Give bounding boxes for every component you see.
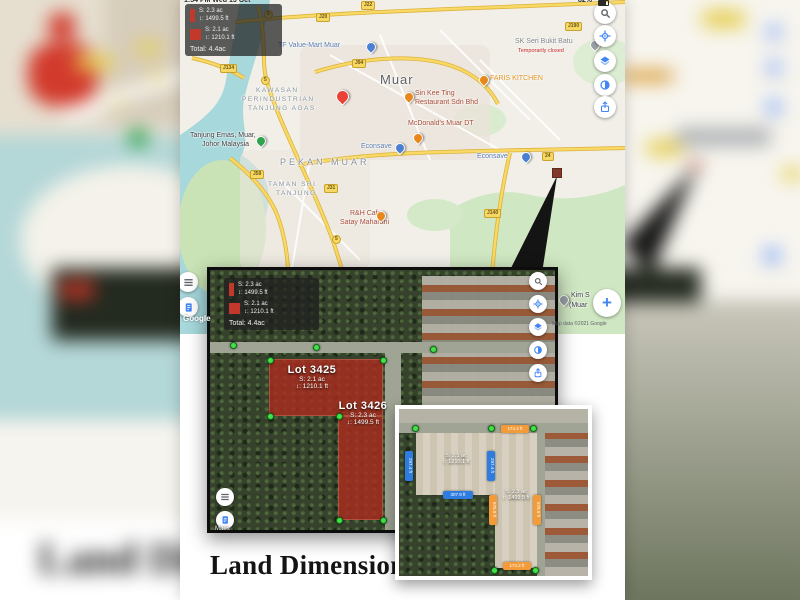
poi-econsave-1: Econsave — [361, 143, 392, 152]
map-label-city: Muar — [380, 72, 414, 88]
vertex-dot[interactable] — [380, 357, 387, 364]
legend-strip-perimeter: ↕: 1499.5 ft — [238, 289, 268, 297]
menu-icon — [183, 277, 194, 288]
route-5-shield-c: 5 — [332, 235, 341, 244]
legend-strip-swatch — [229, 283, 234, 296]
satellite-road-horizontal — [210, 342, 555, 353]
vertex-dot[interactable] — [230, 342, 237, 349]
slide-photo: { "title": "Land Dimension", "background… — [0, 0, 800, 600]
layers-icon — [599, 55, 611, 67]
side-measurement-pill: 307.9 ft — [443, 491, 473, 499]
side-measurement-pill: 174.2 ft — [503, 562, 531, 570]
share-icon — [533, 368, 543, 378]
side-measurement-pill: 297.4 ft — [405, 451, 413, 481]
slide: 1:54 PM Wed 13 Oct 82% S: 2.3 ac ↕: 1499… — [180, 0, 625, 600]
document-icon — [183, 302, 194, 313]
contrast-icon — [533, 345, 543, 355]
vertex-dot[interactable] — [267, 413, 274, 420]
vertex-dot[interactable] — [336, 517, 343, 524]
status-battery: 82% — [578, 0, 592, 4]
inset-housing-row — [539, 423, 588, 576]
map-label-taman-1: TAMAN SRI — [268, 181, 316, 189]
zoom-in-button[interactable]: + — [593, 289, 621, 317]
lot-3425-perimeter: ↕: 1210.1 ft — [262, 383, 362, 390]
road-badge-j190: J190 — [565, 22, 582, 31]
poi-sinkee-line1: Sin Kee Ting — [415, 90, 455, 99]
measurement-legend-map: S: 2.3 ac ↕: 1499.5 ft S: 2.1 ac ↕: 1210… — [185, 4, 282, 56]
search-icon — [600, 8, 611, 19]
my-location-button[interactable] — [594, 25, 616, 47]
legend-strip-perimeter: ↕: 1499.5 ft — [199, 15, 229, 23]
document-icon — [220, 515, 230, 525]
side-measurement-pill: 297.4 ft — [487, 451, 495, 481]
vertex-dot[interactable] — [430, 346, 437, 353]
road-badge-24: 24 — [542, 152, 554, 161]
map-label-industrial-1: KAWASAN — [256, 87, 299, 95]
layers-icon — [533, 322, 543, 332]
poi-sk-seri-bukit-batu: SK Seri Bukit Batu — [515, 38, 573, 47]
side-measurement-pill: 575.9 ft — [489, 495, 497, 525]
poi-kim-line1: Kim S — [571, 292, 590, 301]
contrast-icon — [599, 79, 611, 91]
battery-icon — [598, 0, 609, 6]
dimension-inset: S: 2.1 ac ↕: 1210.1 ft S: 2.3 ac ↕: 1499… — [395, 405, 592, 580]
vertex-dot — [488, 425, 495, 432]
plus-icon: + — [602, 293, 612, 313]
inset-top-strip — [399, 409, 588, 423]
legend-total: Total: 4.4ac — [229, 319, 313, 329]
search-button[interactable] — [529, 272, 547, 290]
road-badge-j59: J59 — [250, 170, 264, 179]
vertex-dot[interactable] — [313, 344, 320, 351]
measurement-legend-satellite: S: 2.3 ac ↕: 1499.5 ft S: 2.1 ac ↕: 1210… — [224, 278, 319, 330]
blurred-title-text: Land Dim — [38, 533, 184, 584]
map-label-industrial-2: PERINDUSTRIAN — [242, 96, 315, 104]
poi-tf-value-mart: TF Value-Mart Muar — [278, 42, 340, 51]
menu-icon — [220, 492, 230, 502]
menu-button[interactable] — [216, 488, 234, 506]
contrast-button[interactable] — [594, 74, 616, 96]
legend-block-perimeter: ↕: 1210.1 ft — [244, 308, 274, 316]
layers-button[interactable] — [594, 50, 616, 72]
blurred-person-icon — [48, 12, 76, 40]
legend-block-swatch — [190, 29, 201, 40]
inset-parcel-a-label: S: 2.1 ac ↕: 1210.1 ft — [426, 453, 486, 465]
share-icon — [599, 101, 611, 113]
status-time: 1:54 PM Wed 13 Oct — [184, 0, 250, 4]
poi-sinkee-line2: Restaurant Sdn Bhd — [415, 99, 478, 108]
poi-mcdonalds: McDonald's Muar DT — [408, 120, 474, 129]
road-badge-j22: J22 — [361, 1, 375, 10]
my-location-button[interactable] — [529, 295, 547, 313]
contrast-button[interactable] — [529, 341, 547, 359]
search-icon — [534, 277, 543, 286]
poi-tanjung-emas-line2: Johor Malaysia — [202, 141, 249, 150]
poi-tanjung-emas-line1: Tanjung Emas, Muar, — [190, 132, 256, 141]
lot-3425-area: S: 2.1 ac — [262, 376, 362, 383]
my-location-icon — [599, 30, 611, 42]
side-measurement-pill: 575.9 ft — [533, 495, 541, 525]
poi-faris-kitchen: FARIS KITCHEN — [490, 75, 543, 84]
vertex-dot — [491, 567, 498, 574]
map-label-industrial-3: TANJUNG AGAS — [248, 105, 316, 113]
poi-econsave-2: Econsave — [477, 153, 508, 162]
legend-strip-swatch — [190, 9, 195, 22]
google-logo: Google — [183, 314, 211, 323]
vertex-dot[interactable] — [380, 517, 387, 524]
poi-kim-line2: (Muar — [569, 302, 587, 311]
land-marker[interactable] — [552, 168, 562, 178]
poi-sk-status: Temporarily closed — [518, 48, 564, 55]
lot-3426-name: Lot 3426 — [325, 400, 401, 412]
legend-strip-area: S: 2.3 ac — [238, 281, 268, 289]
road-badge-j134: J134 — [220, 64, 237, 73]
road-badge-j94: J94 — [352, 59, 366, 68]
route-5-shield-b: 5 — [261, 76, 270, 85]
vertex-dot — [530, 425, 537, 432]
my-location-icon — [533, 299, 543, 309]
inset-parcel-a-perimeter: ↕: 1210.1 ft — [426, 459, 486, 465]
road-badge-j20: J20 — [316, 13, 330, 22]
legend-block-perimeter: ↕: 1210.1 ft — [205, 34, 235, 42]
legend-block-swatch — [229, 303, 240, 314]
map-label-taman-2: TANJUNG — [276, 190, 317, 198]
side-measurement-pill: 174.2 ft — [501, 425, 529, 433]
legend-block-area: S: 2.1 ac — [205, 26, 235, 34]
map-label-town: PEKAN MUAR — [280, 157, 370, 168]
share-button[interactable] — [529, 364, 547, 382]
road-badge-j31: J31 — [324, 184, 338, 193]
lot-3425-label: Lot 3425 S: 2.1 ac ↕: 1210.1 ft — [262, 364, 362, 390]
blurred-backdrop-left: Land Dim — [0, 0, 184, 600]
legend-block-area: S: 2.1 ac — [244, 300, 274, 308]
vertex-dot — [412, 425, 419, 432]
legend-strip-area: S: 2.3 ac — [199, 7, 229, 15]
lot-3426-polygon[interactable] — [338, 416, 383, 520]
map-attribution: Map data ©2021 Google — [552, 321, 607, 327]
vertex-dot — [532, 567, 539, 574]
vertex-dot[interactable] — [336, 413, 343, 420]
page-title: Land Dimension — [210, 550, 406, 581]
road-badge-j140: J140 — [484, 209, 501, 218]
lot-3426-perimeter: ↕: 1499.5 ft — [325, 419, 401, 426]
layers-button[interactable] — [529, 318, 547, 336]
share-button[interactable] — [594, 96, 616, 118]
legend-total: Total: 4.4ac — [190, 45, 276, 55]
blurred-backdrop-right — [621, 0, 800, 600]
lot-3425-name: Lot 3425 — [262, 364, 362, 376]
vertex-dot[interactable] — [267, 357, 274, 364]
maps-watermark: Maps — [215, 526, 230, 532]
